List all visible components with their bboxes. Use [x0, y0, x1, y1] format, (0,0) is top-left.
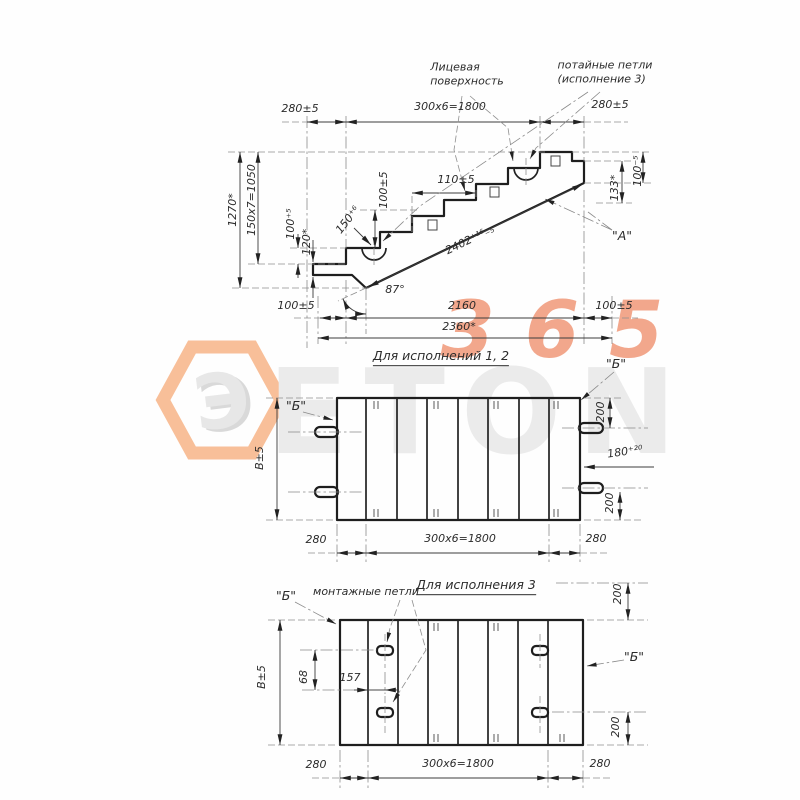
surface-mark-a: "А"	[612, 228, 632, 244]
plan3-dim-280-right: 280	[590, 757, 611, 771]
dim-bottom-left-100: 100±5	[277, 299, 314, 313]
plan12-section-right: "Б"	[606, 356, 626, 372]
dim-height-120: 120*	[300, 229, 314, 256]
dim-bottom-2160: 2160	[448, 299, 476, 313]
dim-top-middle-1800: 300x6=1800	[414, 100, 486, 114]
plan3-dim-width-b: В±5	[255, 665, 269, 689]
plan3-section-left: "Б"	[276, 588, 296, 604]
plan3-outline	[340, 620, 583, 745]
dim-height-100: 100⁺⁵	[284, 208, 298, 239]
plan3-dim-200-bottom: 200	[609, 717, 623, 738]
dim-riser-height-1050: 150x7=1050	[245, 164, 259, 236]
plan12-dim-280-right: 280	[586, 532, 607, 546]
dim-bottom-2360: 2360*	[442, 320, 476, 334]
plan12-dim-200-top: 200	[594, 402, 608, 423]
plan3-dim-68: 68	[297, 670, 311, 684]
socket-ticks	[374, 401, 558, 517]
plan3-dim-1800: 300x6=1800	[422, 757, 494, 771]
plan3-dim-200-top: 200	[611, 584, 625, 605]
loop-socket	[551, 156, 560, 166]
hidden-loops-label: потайные петли (исполнение 3)	[558, 58, 653, 86]
plan12-title: Для исполнений 1, 2	[373, 348, 509, 366]
dim-riser-100: 100±5	[377, 171, 391, 208]
plan12-dim-width-b: В±5	[253, 446, 267, 470]
plan12-section-left: "Б"	[286, 398, 306, 414]
plan3-dim-157: 157	[340, 671, 361, 685]
dim-end-133: 133*	[608, 175, 622, 202]
drawing-sheet: Э ETON 365	[0, 0, 800, 800]
loop-socket	[490, 187, 499, 197]
drawing-linework	[0, 0, 800, 800]
plan3-section-right: "Б"	[624, 649, 644, 665]
dim-overall-height-1270: 1270*	[226, 193, 240, 227]
dim-top-right-280: 280±5	[591, 98, 628, 112]
dim-angle-87: 87°	[385, 283, 405, 297]
plan12-dim-1800: 300x6=1800	[424, 532, 496, 546]
plan3-dim-280-left: 280	[306, 758, 327, 772]
plan3-title: Для исполнения 3	[416, 577, 536, 595]
face-surface-label: Лицевая поверхность	[430, 60, 504, 88]
dim-top-left-280: 280±5	[281, 102, 318, 116]
plan12-dim-280-left: 280	[306, 533, 327, 547]
dim-bottom-right-100: 100±5	[595, 299, 632, 313]
plan3-loops-label: монтажные петли	[313, 585, 419, 599]
dim-end-100: 100⁻⁵	[631, 155, 645, 186]
plan12-dim-200-bottom: 200	[603, 493, 617, 514]
dim-tread-110: 110±5	[437, 173, 474, 187]
loop-socket	[428, 220, 437, 230]
socket-ticks	[434, 623, 564, 742]
